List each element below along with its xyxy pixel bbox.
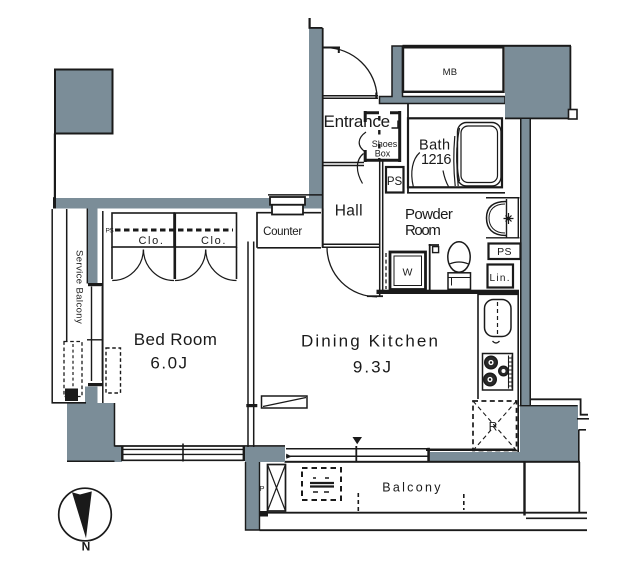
- svg-text:Lin.: Lin.: [490, 273, 511, 284]
- svg-text:Entrance: Entrance: [324, 112, 390, 131]
- svg-text:PS: PS: [106, 228, 115, 235]
- svg-text:6.0J: 6.0J: [150, 354, 188, 373]
- svg-text:Bed Room: Bed Room: [134, 330, 218, 349]
- svg-text:Clo.: Clo.: [201, 235, 227, 247]
- svg-text:Room: Room: [405, 222, 440, 239]
- svg-text:Box: Box: [375, 149, 391, 159]
- svg-text:PS: PS: [387, 176, 403, 188]
- svg-text:MB: MB: [443, 67, 458, 78]
- svg-text:W: W: [403, 267, 413, 279]
- svg-text:P: P: [260, 484, 265, 493]
- svg-text:Balcony: Balcony: [382, 481, 443, 495]
- svg-text:Service Balcony: Service Balcony: [74, 250, 85, 324]
- svg-text:Counter: Counter: [263, 226, 302, 238]
- svg-text:PS: PS: [497, 246, 512, 258]
- svg-text:Shoes: Shoes: [372, 139, 398, 149]
- svg-text:Hall: Hall: [335, 203, 363, 220]
- svg-text:Dining Kitchen: Dining Kitchen: [301, 332, 440, 351]
- svg-text:Clo.: Clo.: [139, 235, 165, 247]
- svg-text:9.3J: 9.3J: [353, 358, 393, 377]
- svg-text:1216: 1216: [421, 152, 451, 168]
- svg-text:Powder: Powder: [405, 206, 453, 223]
